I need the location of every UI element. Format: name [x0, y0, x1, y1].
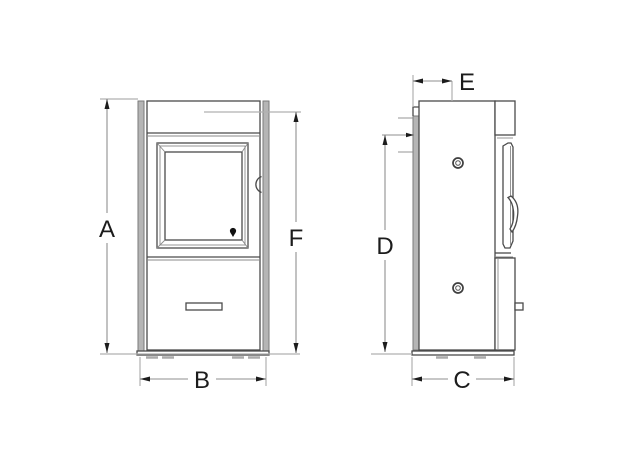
drawer-handle	[186, 303, 222, 310]
front-left-panel	[138, 101, 144, 351]
side-body	[419, 101, 495, 350]
side-rear-step	[413, 107, 419, 116]
dimension-B: B	[140, 357, 266, 394]
front-right-panel	[263, 101, 269, 351]
stove-dimension-drawing: A F B E D	[0, 0, 624, 460]
drawing-canvas: A F B E D	[0, 0, 624, 460]
dimension-label-f: F	[289, 225, 304, 252]
dimension-A: A	[94, 99, 138, 353]
door-window	[165, 152, 242, 240]
side-base-plate	[412, 351, 514, 355]
side-latch-protrusion	[515, 303, 523, 310]
dimension-C: C	[412, 357, 514, 394]
stove-door	[157, 143, 262, 248]
front-view	[137, 101, 269, 358]
dimension-label-a: A	[99, 216, 115, 243]
dimension-D: D	[372, 133, 414, 352]
side-rear-panel	[413, 116, 419, 350]
dimension-label-b: B	[194, 367, 210, 394]
dimension-label-e: E	[459, 69, 475, 96]
dimension-label-c: C	[453, 367, 470, 394]
side-top-cap	[495, 101, 515, 135]
side-view	[398, 101, 523, 358]
dimension-label-d: D	[376, 233, 393, 260]
side-door-bottom-step	[495, 253, 513, 257]
air-control-knob-bottom	[453, 283, 463, 293]
air-control-knob-top	[453, 158, 463, 168]
